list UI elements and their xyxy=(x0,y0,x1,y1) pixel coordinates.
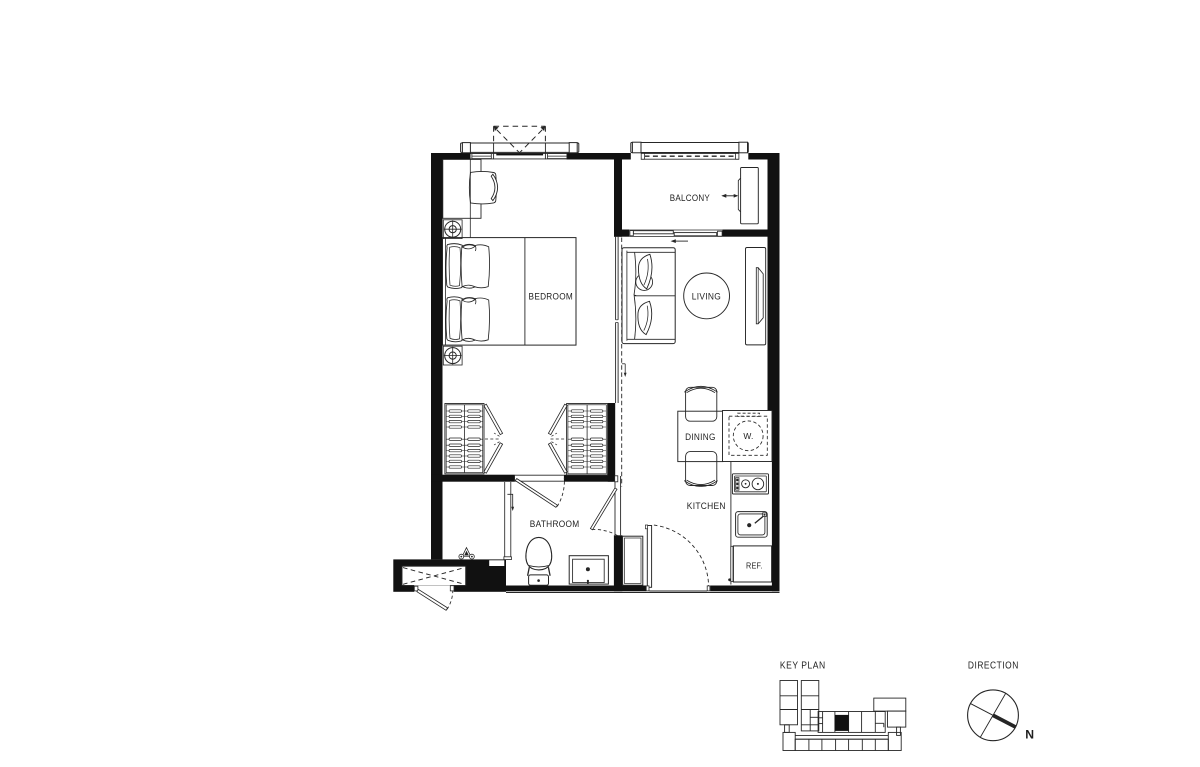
svg-text:KITCHEN: KITCHEN xyxy=(687,501,726,511)
svg-text:BALCONY: BALCONY xyxy=(670,193,710,203)
svg-text:KEY PLAN: KEY PLAN xyxy=(780,660,826,671)
svg-text:DIRECTION: DIRECTION xyxy=(968,661,1019,672)
svg-text:DINING: DINING xyxy=(685,432,716,442)
svg-text:LIVING: LIVING xyxy=(692,291,721,301)
svg-text:BATHROOM: BATHROOM xyxy=(530,519,580,529)
svg-text:BEDROOM: BEDROOM xyxy=(529,292,574,302)
svg-text:N: N xyxy=(1025,728,1034,742)
svg-text:REF.: REF. xyxy=(746,562,763,571)
svg-text:W.: W. xyxy=(743,432,753,441)
